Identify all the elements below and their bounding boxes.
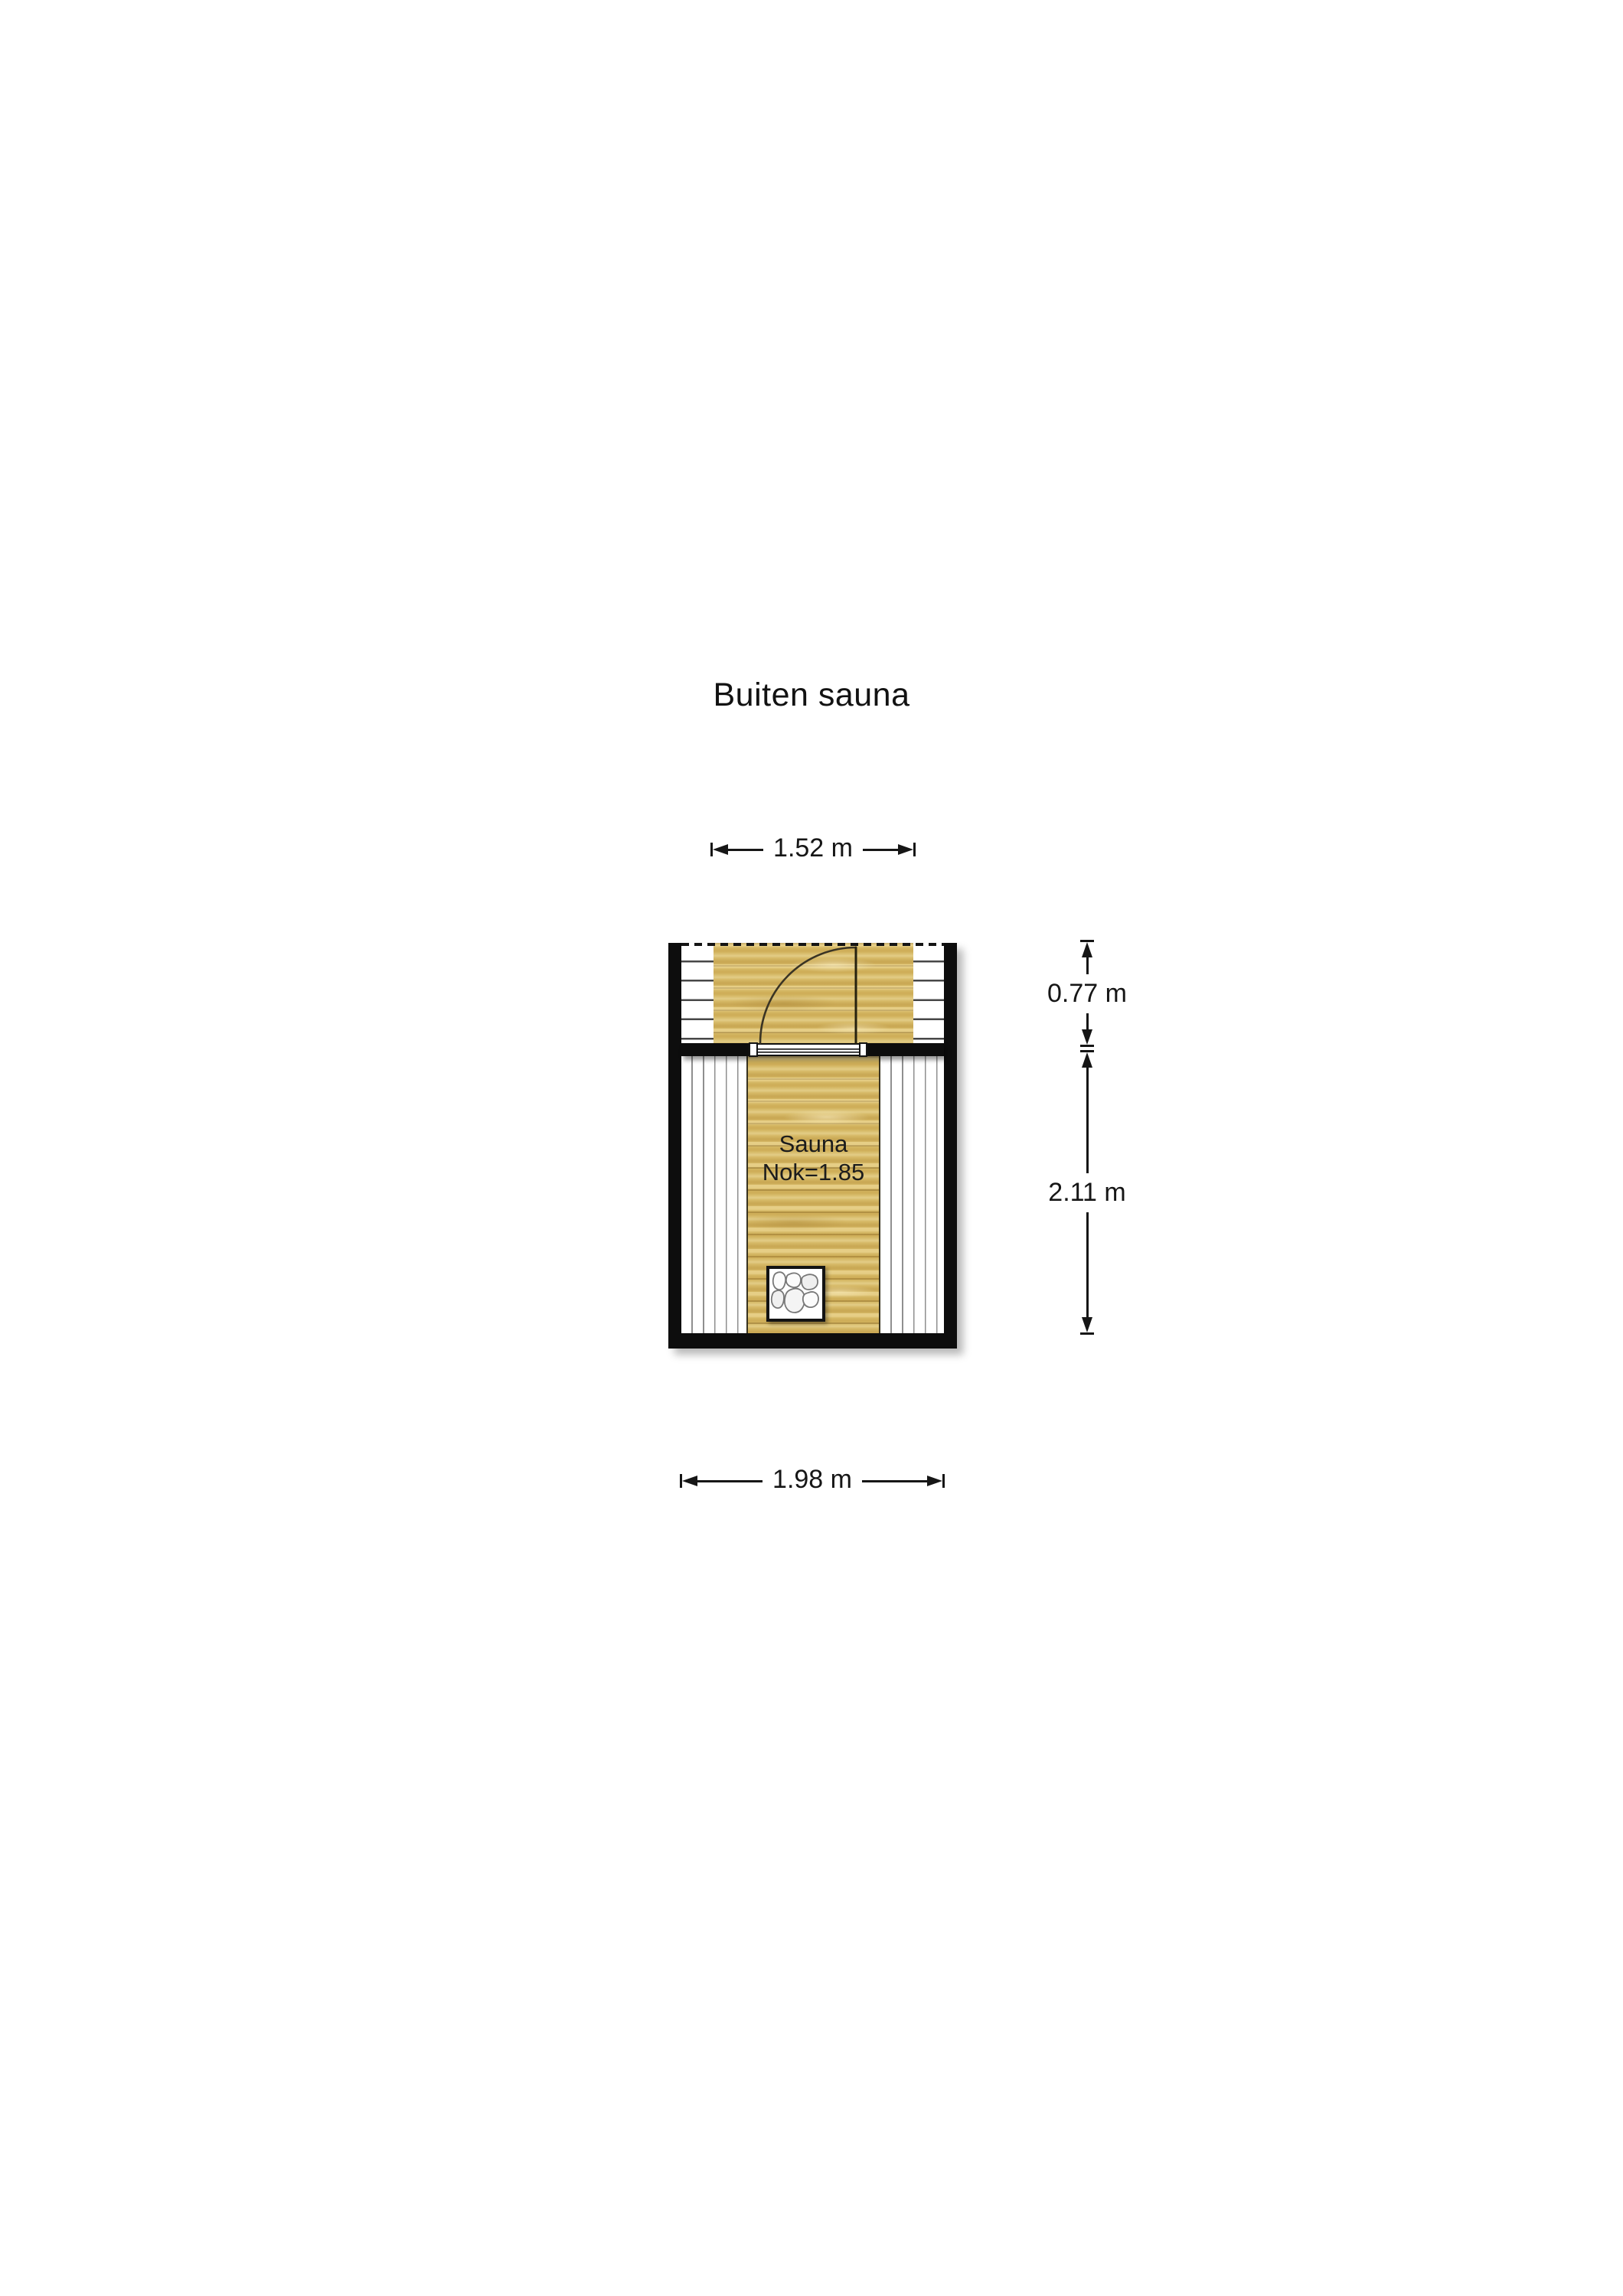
dim-line xyxy=(862,1480,927,1482)
dim-line xyxy=(697,1480,763,1482)
dimension-top-label: 1.52 m xyxy=(763,833,863,863)
arrow-up-icon xyxy=(1082,1052,1092,1068)
dimension-right-lower-label: 2.11 m xyxy=(1048,1173,1125,1212)
dim-line xyxy=(1086,957,1089,974)
heater-stones-icon xyxy=(769,1269,822,1319)
bench-right xyxy=(880,1056,944,1333)
bench-left xyxy=(681,1056,746,1333)
dim-tick xyxy=(913,843,916,856)
wall-bottom xyxy=(668,1333,957,1349)
dimension-bottom-label: 1.98 m xyxy=(763,1465,862,1495)
room-label: Sauna Nok=1.85 xyxy=(748,1130,879,1186)
arrow-down-icon xyxy=(1082,1029,1092,1045)
dimension-right-upper-label: 0.77 m xyxy=(1047,974,1127,1013)
dim-tick xyxy=(1080,1332,1094,1335)
dimension-right-lower: 2.11 m xyxy=(1038,1050,1136,1335)
room-ridge-height: Nok=1.85 xyxy=(748,1158,879,1186)
page-title: Buiten sauna xyxy=(0,677,1623,713)
arrow-right-icon xyxy=(898,844,913,855)
dim-line xyxy=(1086,1013,1089,1030)
dimension-top: 1.52 m xyxy=(710,834,916,865)
dimension-bottom: 1.98 m xyxy=(680,1466,945,1496)
sauna-room: Sauna Nok=1.85 xyxy=(681,1056,944,1333)
sauna-heater-icon xyxy=(766,1266,825,1322)
arrow-right-icon xyxy=(927,1476,942,1486)
dimension-right-upper: 0.77 m xyxy=(1038,940,1136,1047)
arrow-up-icon xyxy=(1082,942,1092,957)
dim-tick xyxy=(942,1474,945,1488)
floor-plan: Sauna Nok=1.85 xyxy=(668,943,957,1349)
room-name: Sauna xyxy=(748,1130,879,1158)
arrow-left-icon xyxy=(713,844,728,855)
dim-line xyxy=(863,849,898,851)
arrow-down-icon xyxy=(1082,1317,1092,1332)
dim-tick xyxy=(1080,1045,1094,1047)
dim-line xyxy=(728,849,763,851)
dim-line xyxy=(1086,1068,1089,1173)
arrow-left-icon xyxy=(682,1476,697,1486)
dim-line xyxy=(1086,1212,1089,1318)
door-swing-icon xyxy=(668,943,957,1058)
